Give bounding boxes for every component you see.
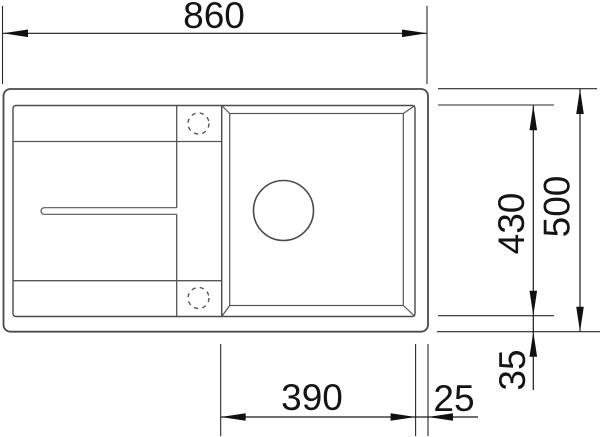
sink-top-view	[4, 89, 429, 332]
tap-hole-top	[188, 113, 209, 134]
bowl-corner-bevels	[222, 106, 415, 317]
arrow-left	[3, 30, 28, 38]
dim-label-overall-depth: 500	[537, 176, 578, 238]
bowl-inner-edge	[230, 114, 404, 306]
dim-overall-width: 860	[3, 0, 428, 84]
arrow-up	[576, 89, 584, 114]
dim-label-bottom-rim-offset: 35	[492, 349, 533, 390]
dim-label-bowl-depth: 430	[491, 193, 532, 255]
sink-dimension-drawing: 860 500 430 35	[0, 0, 600, 437]
arrow-left	[221, 413, 246, 421]
arrow-down	[576, 307, 584, 332]
arrow-right	[391, 413, 416, 421]
drainboard-groove	[41, 208, 177, 215]
dim-bottom-rim-offset: 35	[492, 316, 537, 391]
sink-outer-rim	[4, 89, 429, 332]
dim-bowl-width: 390	[221, 344, 416, 436]
arrow-right	[402, 30, 427, 38]
tap-hole-bottom	[188, 288, 209, 309]
dim-label-bowl-width: 390	[281, 377, 343, 418]
dim-label-overall-width: 860	[183, 0, 245, 36]
arrow-down	[530, 291, 538, 316]
drawing-canvas: 860 500 430 35	[0, 0, 600, 437]
arrow-up	[530, 105, 538, 130]
dim-right-rim-offset: 25	[416, 344, 478, 436]
dim-label-right-rim-offset: 25	[433, 378, 474, 419]
drain-hole	[254, 181, 314, 241]
sink-inner-recess	[13, 106, 415, 317]
